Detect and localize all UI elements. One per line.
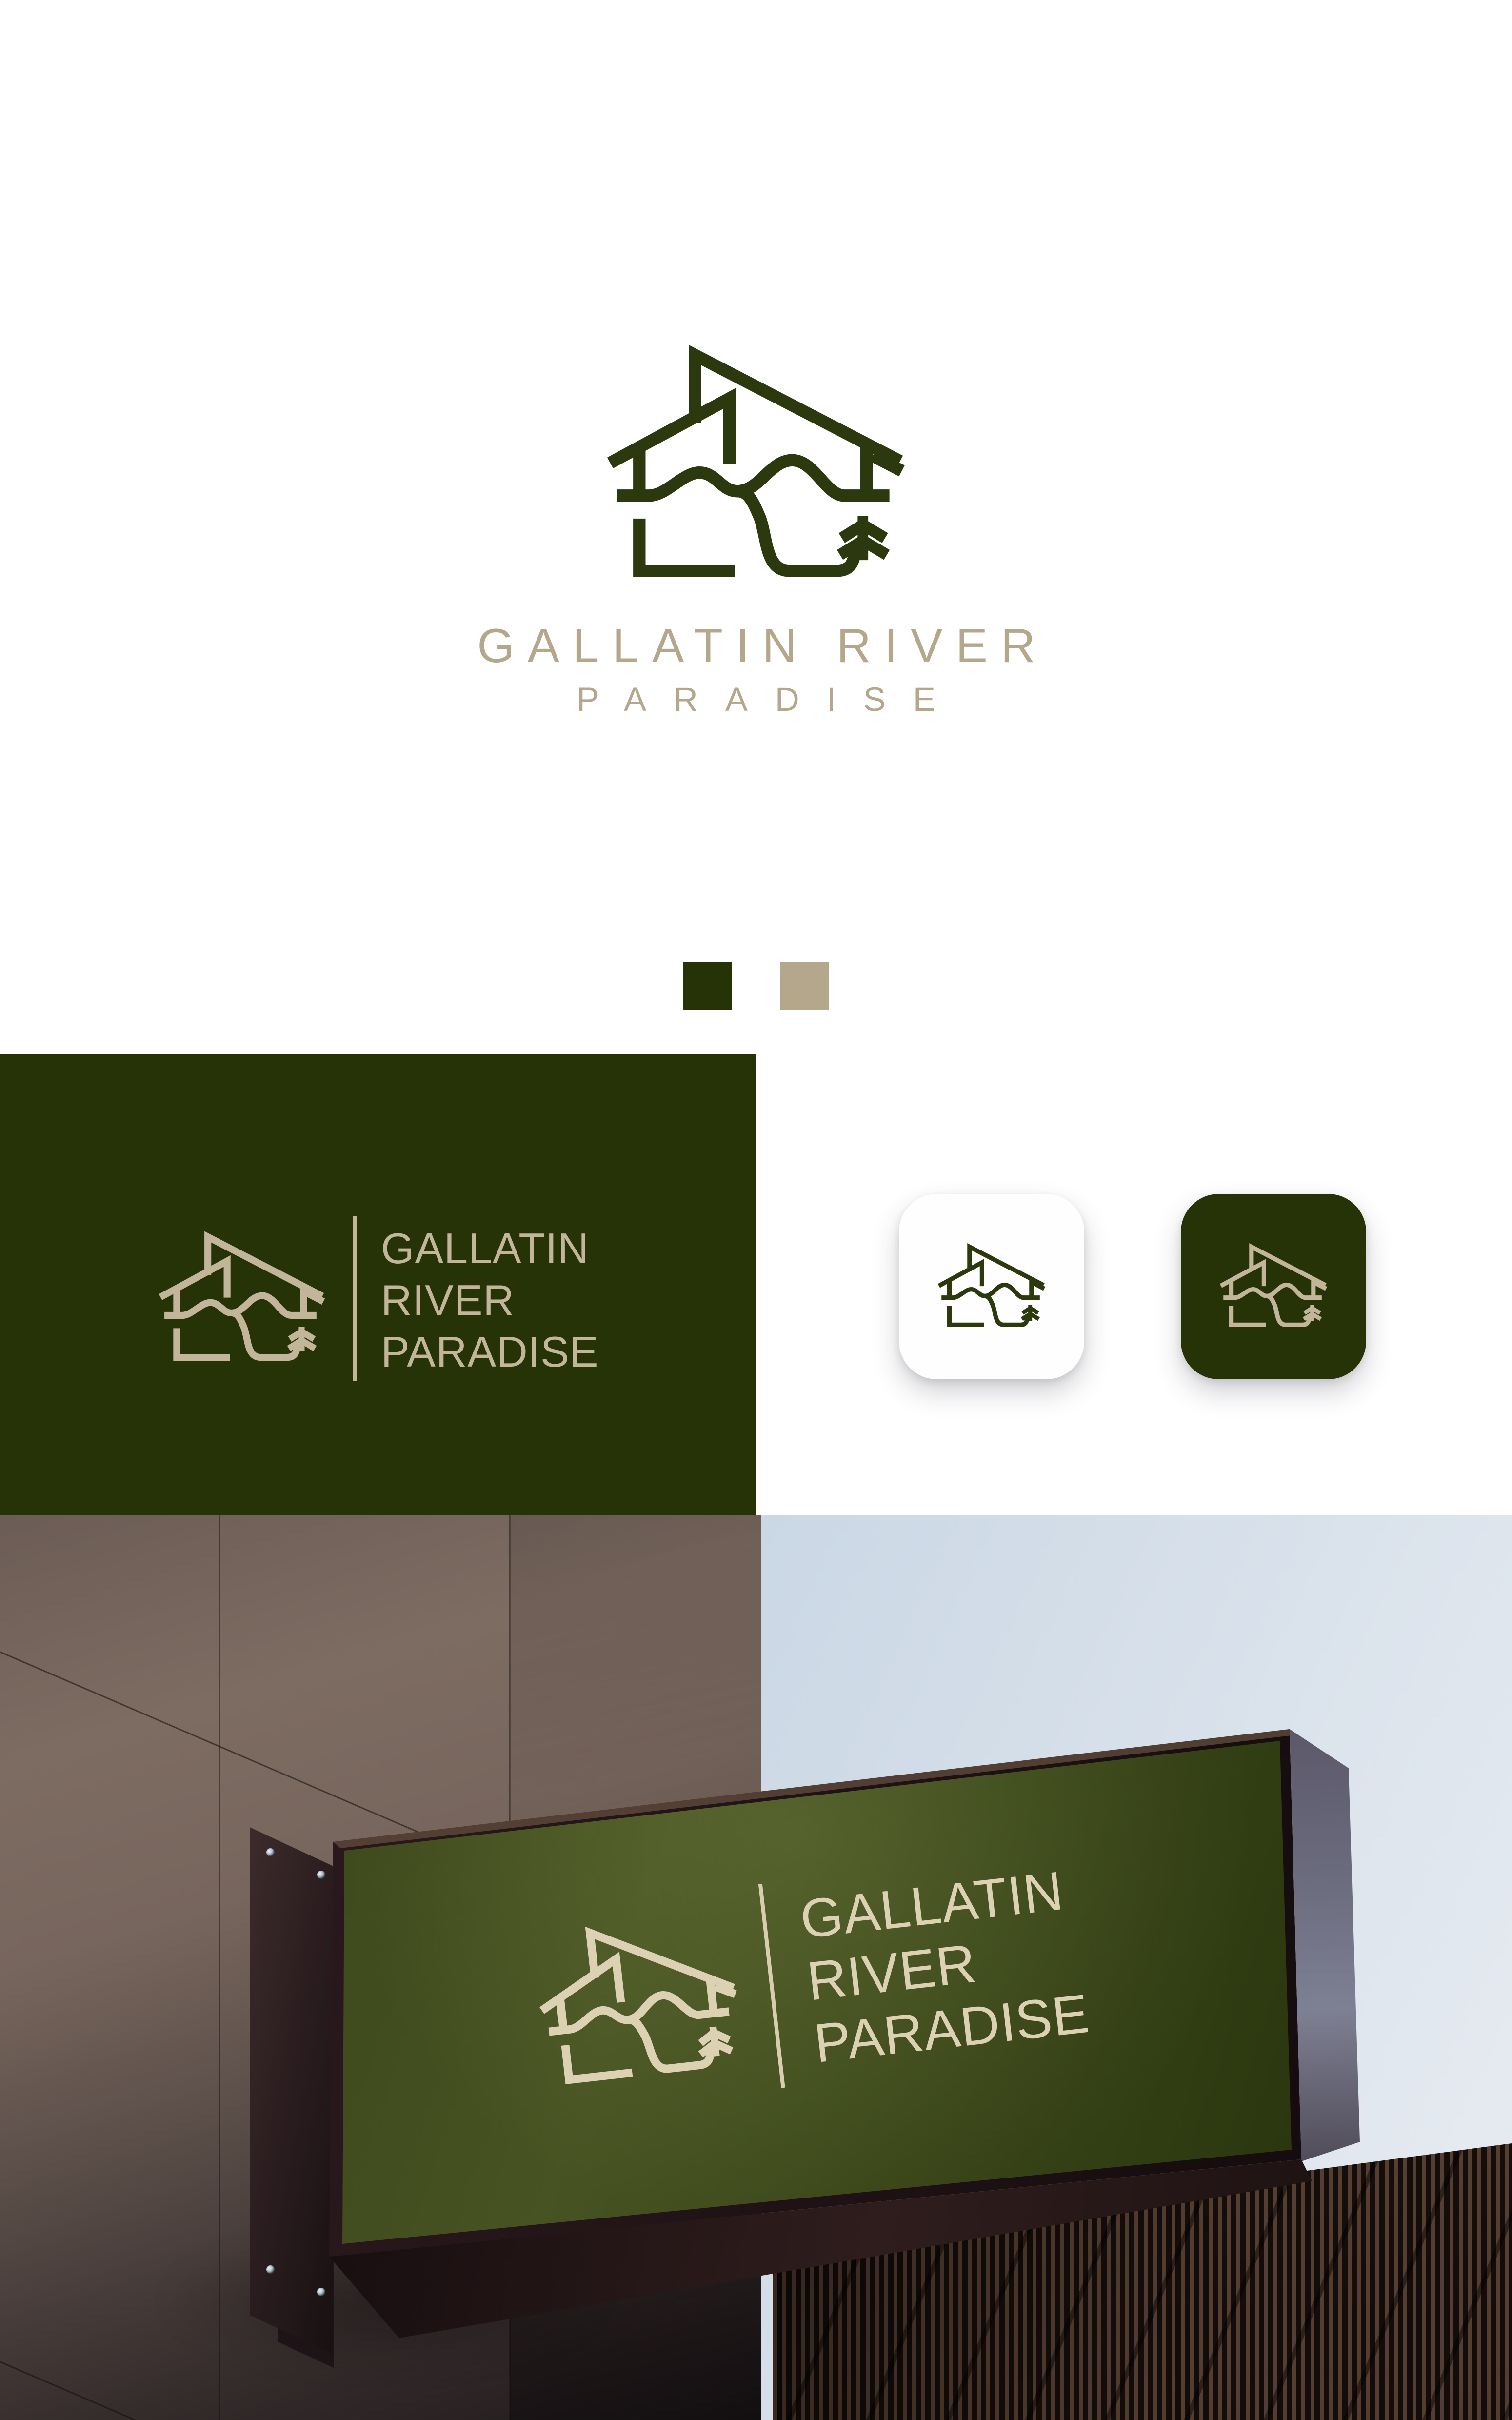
house-river-logo-icon	[939, 1245, 1044, 1328]
lockup-divider-line	[353, 1216, 357, 1381]
house-river-logo-icon	[1221, 1245, 1326, 1328]
lockup-wordmark: GALLATIN RIVER PARADISE	[381, 1223, 599, 1378]
house-river-logo-icon	[610, 349, 902, 581]
bracket-screw	[266, 2265, 275, 2274]
brand-wordmark: GALLATIN RIVER	[0, 618, 1512, 673]
brand-wordmark-text: GALLATIN RIVER	[477, 619, 1048, 672]
app-icon-dark	[1181, 1194, 1366, 1379]
brand-tagline: PARADISE	[0, 680, 1512, 719]
sign-mount-bracket	[250, 1827, 333, 2354]
sign-divider-line	[758, 1884, 785, 2088]
lockup-line-1: GALLATIN	[381, 1223, 599, 1274]
logo-panel-green: GALLATIN RIVER PARADISE	[0, 1054, 756, 1515]
house-river-logo-icon	[534, 1914, 744, 2088]
bracket-screw	[266, 1848, 275, 1856]
primary-logo-section: GALLATIN RIVER PARADISE	[0, 0, 1512, 1054]
lockup-line-3: PARADISE	[381, 1326, 599, 1378]
secondary-lockup-section: GALLATIN RIVER PARADISE	[0, 1054, 1512, 1515]
brand-tagline-text: PARADISE	[577, 681, 963, 718]
sign-wordmark: GALLATIN RIVER PARADISE	[797, 1858, 1092, 2075]
brand-presentation-canvas: GALLATIN RIVER PARADISE GALLATIN RIVER P…	[0, 0, 1512, 2420]
lockup-line-2: RIVER	[381, 1274, 599, 1326]
storefront-signboard: GALLATIN RIVER PARADISE	[322, 1722, 1385, 2357]
house-river-logo-icon	[160, 1233, 323, 1363]
color-swatch-tan	[780, 962, 829, 1010]
sign-mockup-photo: GALLATIN RIVER PARADISE	[0, 1515, 1512, 2420]
app-icon-light	[899, 1194, 1084, 1379]
sign-logo-lockup: GALLATIN RIVER PARADISE	[527, 1791, 1313, 2147]
color-swatch-green	[683, 962, 732, 1010]
